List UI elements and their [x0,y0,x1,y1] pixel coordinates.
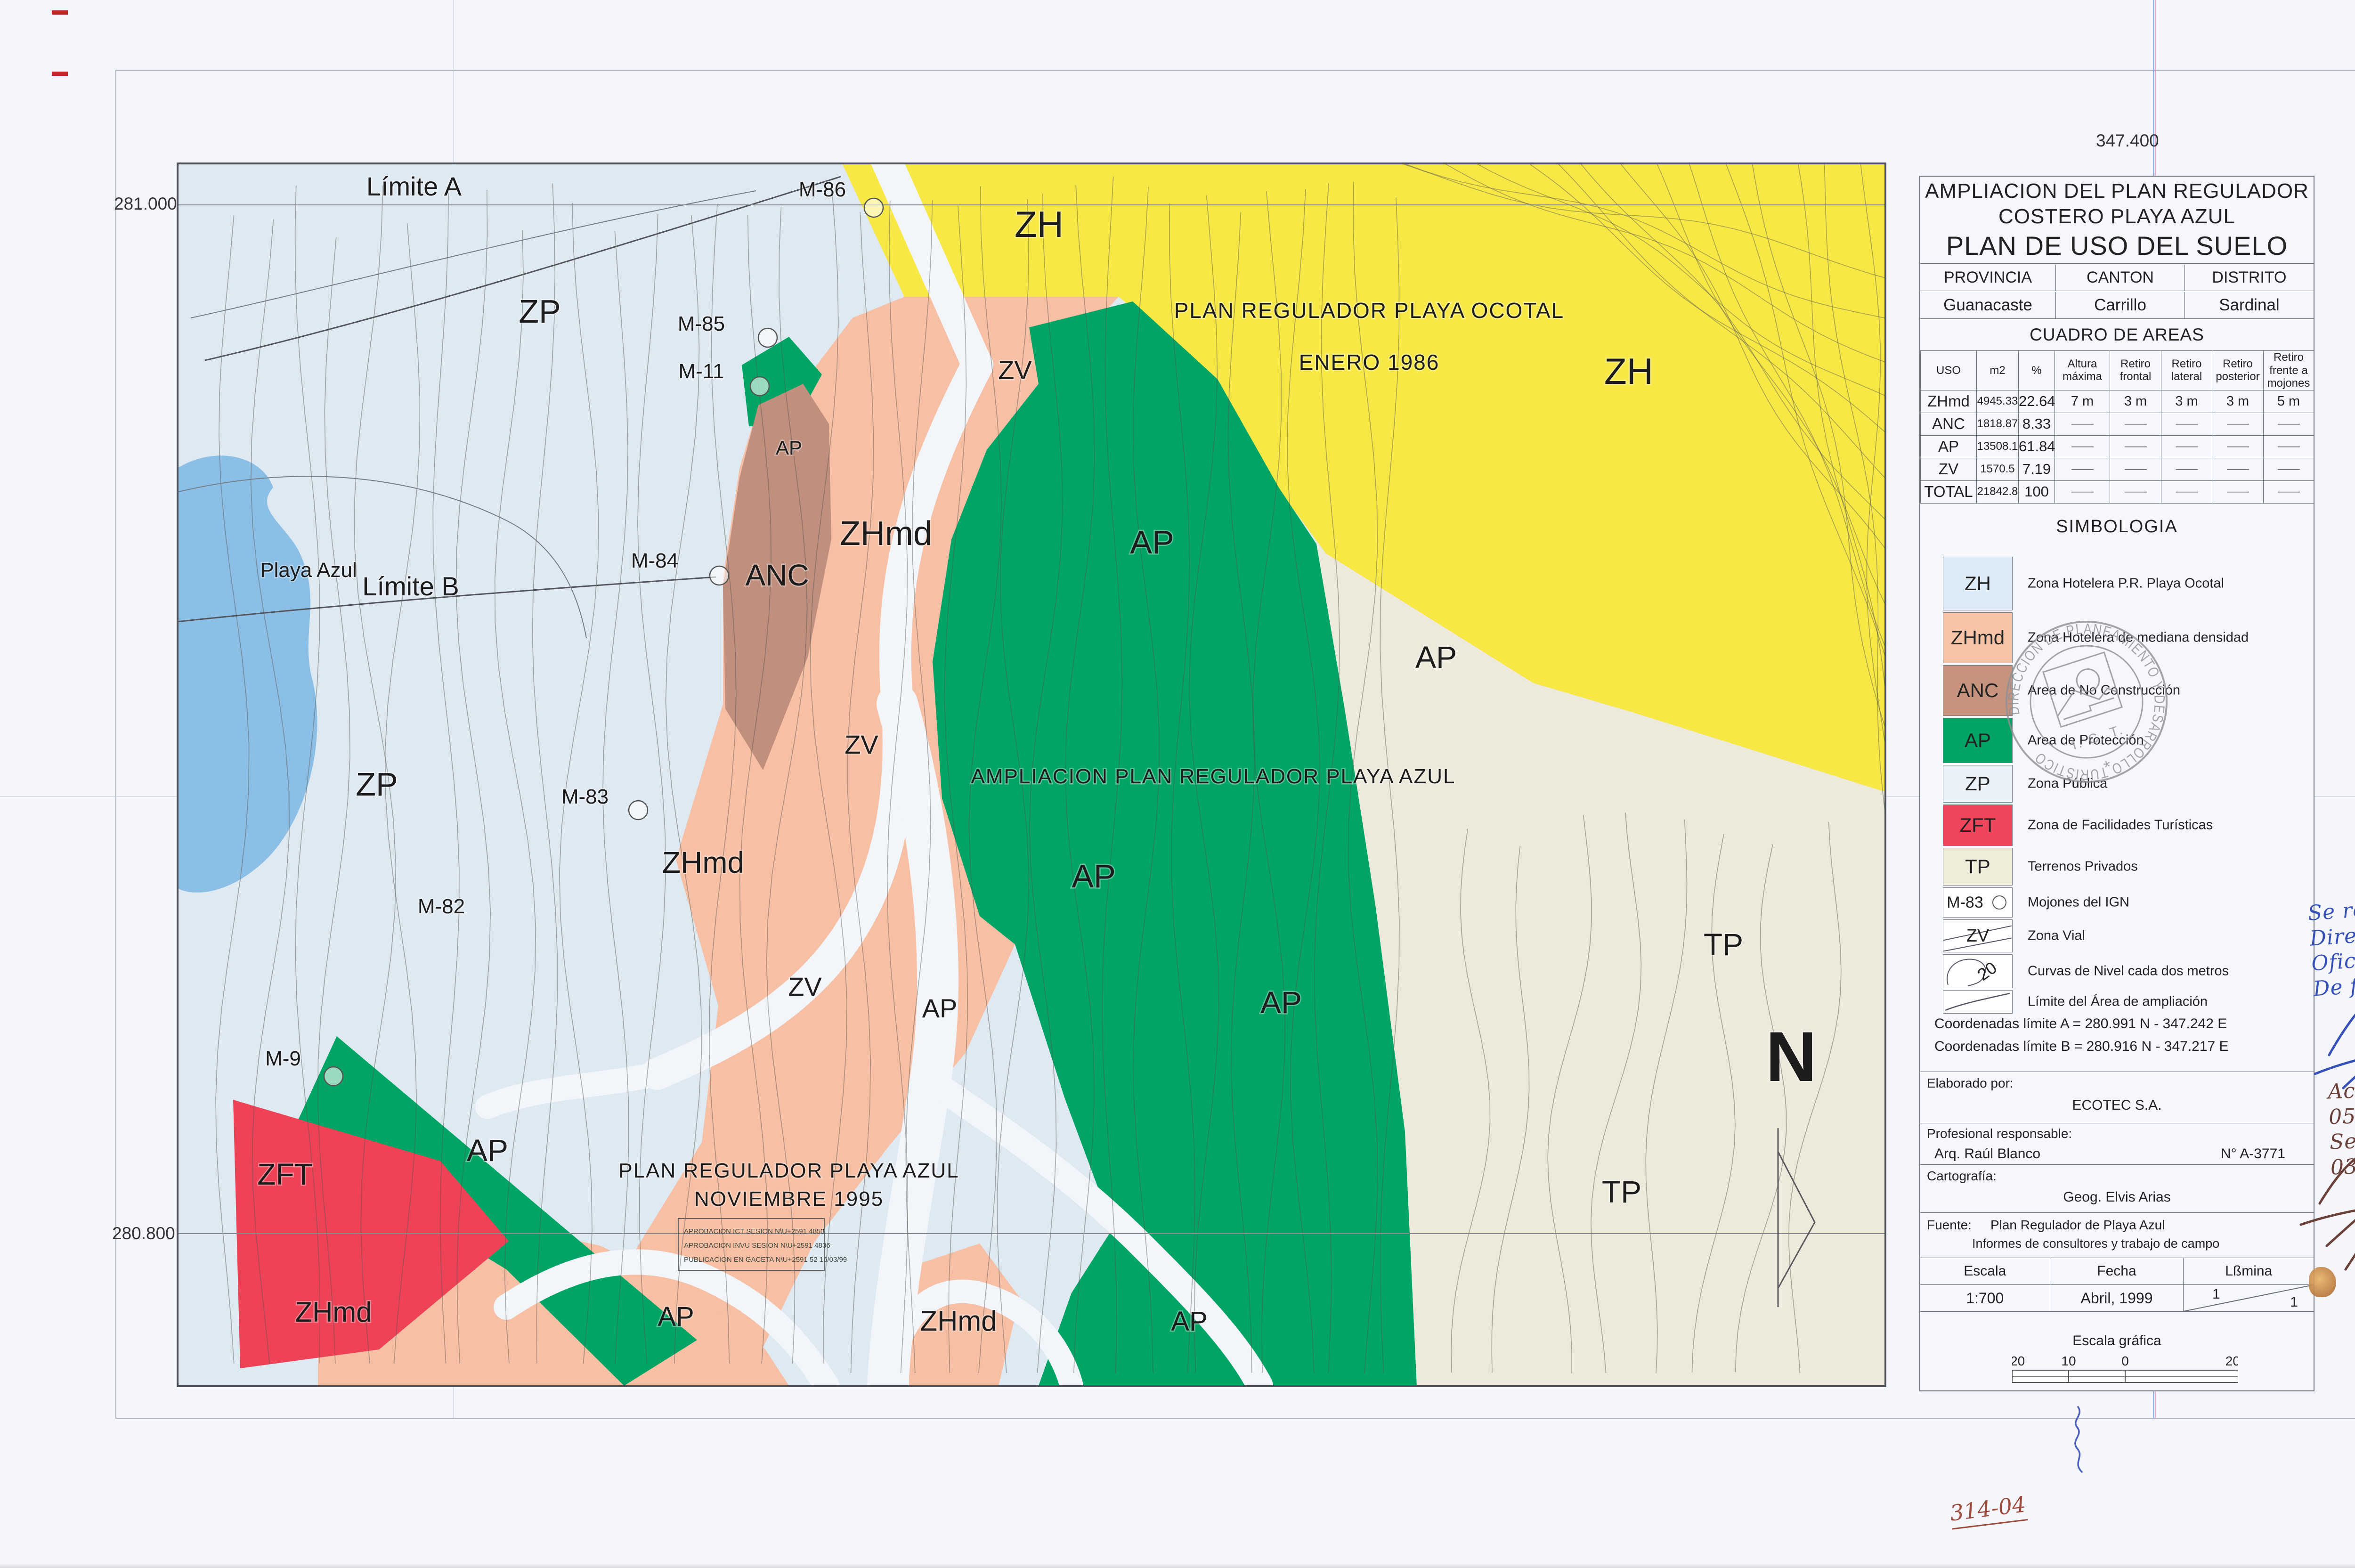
escala-value: 1:700 [1920,1285,2050,1311]
legend-label: Curvas de Nivel cada dos metros [2028,964,2229,979]
areas-cell: —— [2264,435,2314,458]
elaborado-label: Elaborado por: [1920,1072,2314,1091]
map-region-title: PLAN REGULADOR PLAYA OCOTAL [1174,298,1565,323]
profesional-registry: N° A-3771 [2221,1146,2285,1162]
plan-title-line1: AMPLIACION DEL PLAN REGULADOR [1920,179,2314,203]
map-zone-label-ZHmd: ZHmd [840,515,932,552]
elaborado-value: ECOTEC S.A. [1920,1097,2314,1113]
areas-cell: —— [2161,413,2212,435]
register-mark [52,10,68,15]
areas-cell: —— [2110,413,2161,435]
map-zone-label-TP: TP [1704,927,1743,962]
areas-cell: —— [2212,480,2264,503]
areas-table: USOm2%Altura máximaRetiro frontalRetiro … [1920,350,2314,504]
areas-col-header: Retiro posterior [2212,351,2264,390]
coordinates-limit-b: Coordenadas límite B = 280.916 N - 347.2… [1920,1039,2314,1055]
map-zone-label-AP: AP [658,1301,694,1332]
svg-text:10: 10 [2061,1354,2076,1368]
mojon-icon [1990,893,2009,912]
areas-cell: —— [2161,435,2212,458]
map-zone-label-ZHmd: ZHmd [295,1296,372,1328]
map-zone-label-ZHmd: ZHmd [662,845,744,879]
areas-cell: 22.64 [2019,390,2055,413]
grid-label-north-bottom: 280.800 [112,1224,175,1243]
provincia-header: PROVINCIA [1920,265,2056,291]
legend-swatch: ZFT [1943,804,2013,846]
areas-cell: TOTAL [1921,480,1977,503]
map-zone-label-ZH: ZH [1015,203,1064,245]
svg-text:20m: 20m [2225,1354,2238,1368]
areas-col-header: Retiro lateral [2161,351,2212,390]
mojon-label-M-9: M-9 [265,1047,301,1070]
areas-cell: ANC [1921,413,1977,435]
areas-cell: 13508.1 [1977,435,2019,458]
areas-cell: —— [2110,435,2161,458]
mojon-label-M-85: M-85 [678,312,725,335]
mojon-marker-M-11 [750,377,769,396]
legend-swatch: ZH [1943,557,2013,610]
profesional-label: Profesional responsable: [1920,1123,2314,1141]
legend-label: Mojones del IGN [2028,895,2129,910]
fuente-line2: Informes de consultores y trabajo de cam… [1920,1233,2314,1251]
areas-cell: 4945.33 [1977,390,2019,413]
canton-value: Carrillo [2056,292,2185,318]
legend-item-limite: Límite del Área de ampliación [1920,990,2314,1014]
areas-cell: —— [2110,480,2161,503]
map-region-title: PLAN REGULADOR PLAYA AZUL [618,1159,959,1182]
areas-cell: —— [2264,480,2314,503]
register-mark [52,72,68,76]
areas-cell: 8.33 [2019,413,2055,435]
legend-code: ZFT [1960,814,1996,837]
cartografia-label: Cartografía: [1920,1165,2314,1184]
map-zone-label-ZV: ZV [788,972,822,1001]
plan-title-line3: PLAN DE USO DEL SUELO [1920,230,2314,261]
areas-table-title: CUADRO DE AREAS [2030,325,2204,345]
legend-item-20: 20Curvas de Nivel cada dos metros [1920,954,2314,988]
mojon-label-M-84: M-84 [631,549,678,572]
legend-swatch: 20 [1943,954,2013,988]
profesional-name: Arq. Raúl Blanco [1934,1146,2040,1162]
distrito-header: DISTRITO [2185,265,2314,291]
map-zone-label-ZH: ZH [1604,350,1653,392]
svg-text:0: 0 [2121,1354,2129,1368]
areas-cell: —— [2110,458,2161,480]
legend-item-ZV: ZVZona Vial [1920,919,2314,952]
coffee-stain [2309,1267,2336,1297]
areas-cell: —— [2212,458,2264,480]
map-zone-label-AP: AP [1260,985,1302,1020]
fuente-label: Fuente: [1927,1218,1972,1233]
legend-code: ZHmd [1951,626,2005,649]
legend-label: Terrenos Privados [2028,859,2138,875]
mojon-label-M-82: M-82 [418,895,465,918]
areas-cell: —— [2055,480,2110,503]
map-boundary-label: Límite A [366,171,462,201]
areas-cell: —— [2161,458,2212,480]
zoning-map: ZHZHZPZPZVZVZVAPAPAPAPAPAPAPAPAPZHmdZHmd… [177,162,1886,1387]
approval-line: PUBLICACION EN GACETA N\U+2591 52 16/03/… [684,1256,847,1264]
map-boundary-label: Límite B [362,571,459,601]
approval-line: APROBACION INVU SESION N\U+2591 4836 [684,1242,830,1250]
legend-item-TP: TPTerrenos Privados [1920,848,2314,886]
legend-swatch: M-83 [1943,887,2013,918]
legend-code: ANC [1957,679,1999,702]
areas-cell: AP [1921,435,1977,458]
legend-code: ZV [1966,926,1990,946]
areas-col-header: Retiro frontal [2110,351,2161,390]
lamina-bottom: 1 [2290,1294,2298,1310]
legend-label: Límite del Área de ampliación [2028,994,2208,1010]
lamina-cell: 1 1 [2184,1285,2314,1311]
lamina-header: Lßmina [2184,1258,2314,1284]
areas-cell: 100 [2019,480,2055,503]
areas-cell: —— [2055,458,2110,480]
legend-code: TP [1965,855,1990,878]
areas-cell: —— [2264,458,2314,480]
map-zone-label-ZV: ZV [845,730,878,759]
map-zone-label-N: N [1766,1017,1817,1096]
legend-swatch: TP [1943,848,2013,886]
legend-swatch [1943,990,2013,1014]
escala-header: Escala [1920,1258,2050,1284]
mojon-marker-M-86 [864,198,883,217]
areas-col-header: Altura máxima [2055,351,2110,390]
areas-col-header: % [2019,351,2055,390]
map-zone-label-ZP: ZP [519,293,560,330]
plan-title-line2: COSTERO PLAYA AZUL [1920,205,2314,228]
areas-cell: 3 m [2212,390,2264,413]
areas-cell: 7.19 [2019,458,2055,480]
legend-item-ZFT: ZFTZona de Facilidades Turísticas [1920,804,2314,846]
limite-icon [1943,991,2012,1013]
mojon-label-M-83: M-83 [561,785,609,808]
fecha-value: Abril, 1999 [2050,1285,2184,1311]
distrito-value: Sardinal [2185,292,2314,318]
map-zone-label-AP: AP [1130,524,1174,561]
cartografia-value: Geog. Elvis Arias [1920,1189,2314,1205]
areas-cell: 7 m [2055,390,2110,413]
mojon-marker-M-85 [758,328,777,347]
areas-cell: 3 m [2161,390,2212,413]
areas-col-header: USO [1921,351,1977,390]
paper-edge-shadow-bottom [0,1563,2355,1568]
map-zone-label-ZV: ZV [998,355,1032,385]
areas-cell: —— [2212,435,2264,458]
areas-cell: 1570.5 [1977,458,2019,480]
svg-text:m20: m20 [2012,1354,2025,1368]
map-region-title: AMPLIACION PLAN REGULADOR PLAYA AZUL [971,765,1456,788]
areas-cell: —— [2161,480,2212,503]
approval-line: APROBACION ICT SESION N\U+2591 4853 [684,1227,825,1235]
svg-text:DIRECCION DE PLANEAMIENTO Y DE: DIRECCION DE PLANEAMIENTO Y DESARROLLO T… [1985,599,2189,804]
ict-stamp: DIRECCION DE PLANEAMIENTO Y DESARROLLO T… [2001,616,2172,788]
fecha-header: Fecha [2050,1258,2184,1284]
handwritten-vertical-word [2063,1401,2091,1477]
areas-cell: —— [2055,413,2110,435]
areas-cell: —— [2264,413,2314,435]
grid-label-east-top: 347.400 [2096,131,2159,151]
legend-title: SIMBOLOGIA [2056,517,2178,537]
areas-cell: 1818.87 [1977,413,2019,435]
map-zone-label-AP: AP [1072,858,1115,894]
mojon-label-M-11: M-11 [679,360,724,383]
map-zone-label-AP: AP [1171,1306,1207,1337]
coordinates-limit-a: Coordenadas límite A = 280.991 N - 347.2… [1920,1016,2314,1032]
areas-cell: —— [2212,413,2264,435]
areas-cell: 61.84 [2019,435,2055,458]
legend-label: Zona Hotelera P.R. Playa Ocotal [2028,576,2224,592]
map-zone-label-ZFT: ZFT [257,1157,312,1191]
map-zone-label-AP: AP [467,1133,508,1168]
map-zone-label-AP: AP [1415,640,1457,674]
map-zone-label-ZHmd: ZHmd [920,1305,997,1337]
areas-cell: ZV [1921,458,1977,480]
map-zone-label-ANC: ANC [745,558,809,592]
map-boundary-label: Playa Azul [260,559,357,582]
map-zone-label-AP: AP [776,437,802,459]
map-zone-label-ZP: ZP [356,766,398,803]
legend-swatch: ZV [1943,919,2013,952]
areas-col-header: m2 [1977,351,2019,390]
legend-code: ZH [1965,572,1991,595]
legend-item-ZH: ZHZona Hotelera P.R. Playa Ocotal [1920,557,2314,610]
map-zone-label-AP: AP [922,993,958,1023]
mojon-marker-M-9 [324,1067,343,1086]
signature-blue [2310,961,2355,1102]
legend-label: Zona de Facilidades Turísticas [2028,818,2213,833]
mojon-label-M-86: M-86 [799,178,846,201]
areas-col-header: Retiro frente a mojones [2264,351,2314,390]
areas-cell: 21842.8 [1977,480,2019,503]
mojon-marker-M-84 [710,566,729,585]
areas-cell: 5 m [2264,390,2314,413]
legend-code: AP [1965,729,1991,752]
map-region-title: ENERO 1986 [1299,350,1440,374]
lamina-top: 1 [2212,1286,2220,1302]
scale-bar: m2010020m [2012,1354,2238,1387]
areas-cell: —— [2055,435,2110,458]
legend-item-M-83: M-83 Mojones del IGN [1920,887,2314,918]
map-zone-label-TP: TP [1602,1174,1641,1209]
scale-bar-title: Escala gráfica [1920,1333,2314,1349]
mojon-marker-M-83 [629,801,648,820]
grid-label-north-top: 281.000 [114,194,177,214]
canton-header: CANTON [2056,265,2185,291]
legend-label: Zona Vial [2028,928,2085,944]
scanned-zoning-plan: { "document": { "sheet_code": "314-04", … [0,0,2355,1568]
signature-brown [2298,1128,2355,1279]
legend-code: M-83 [1947,894,1983,912]
areas-cell: ZHmd [1921,390,1977,413]
areas-cell: 3 m [2110,390,2161,413]
provincia-value: Guanacaste [1920,292,2056,318]
fuente-line1: Plan Regulador de Playa Azul [1990,1218,2165,1233]
legend-code: ZP [1965,772,1990,795]
map-region-title: NOVIEMBRE 1995 [694,1187,884,1211]
